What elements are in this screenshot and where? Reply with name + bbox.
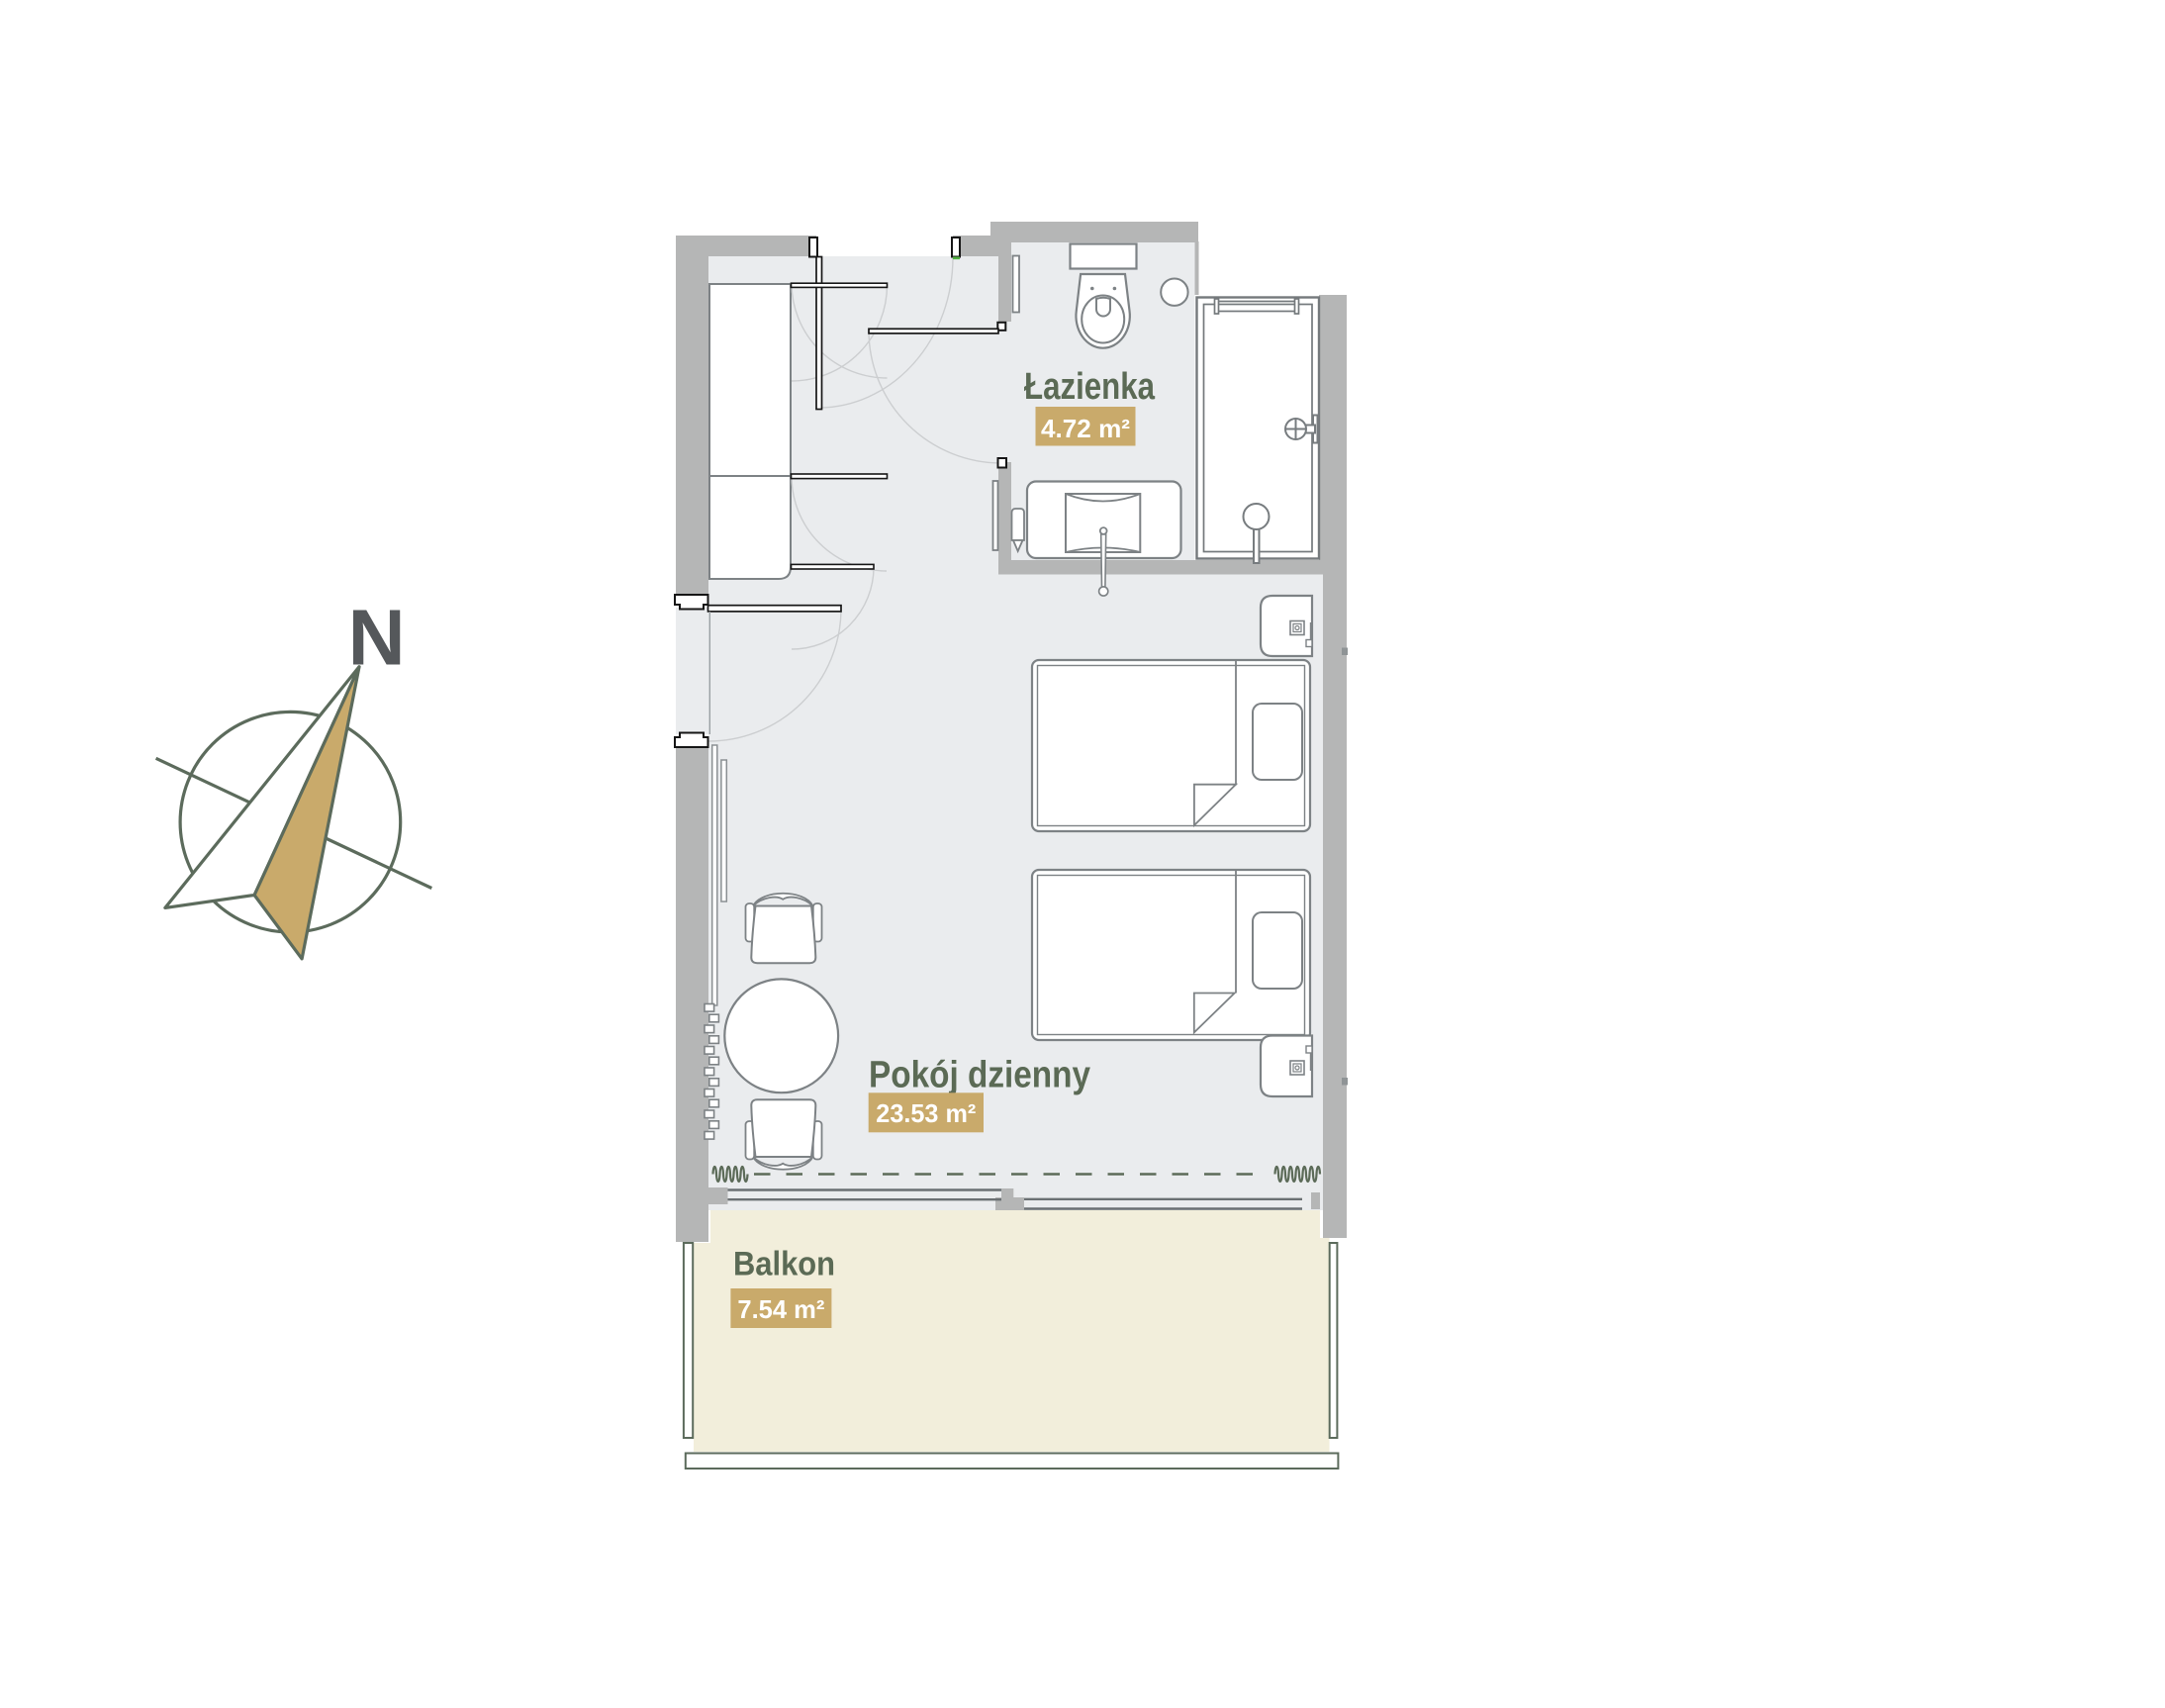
svg-text:Pokój dzienny: Pokój dzienny	[869, 1055, 1090, 1096]
svg-text:N: N	[348, 593, 406, 681]
svg-text:7.54 m²: 7.54 m²	[737, 1294, 824, 1324]
svg-text:Balkon: Balkon	[733, 1246, 835, 1283]
svg-text:4.72 m²: 4.72 m²	[1041, 414, 1130, 443]
svg-text:23.53 m²: 23.53 m²	[876, 1098, 976, 1128]
svg-text:Łazienka: Łazienka	[1024, 366, 1156, 408]
